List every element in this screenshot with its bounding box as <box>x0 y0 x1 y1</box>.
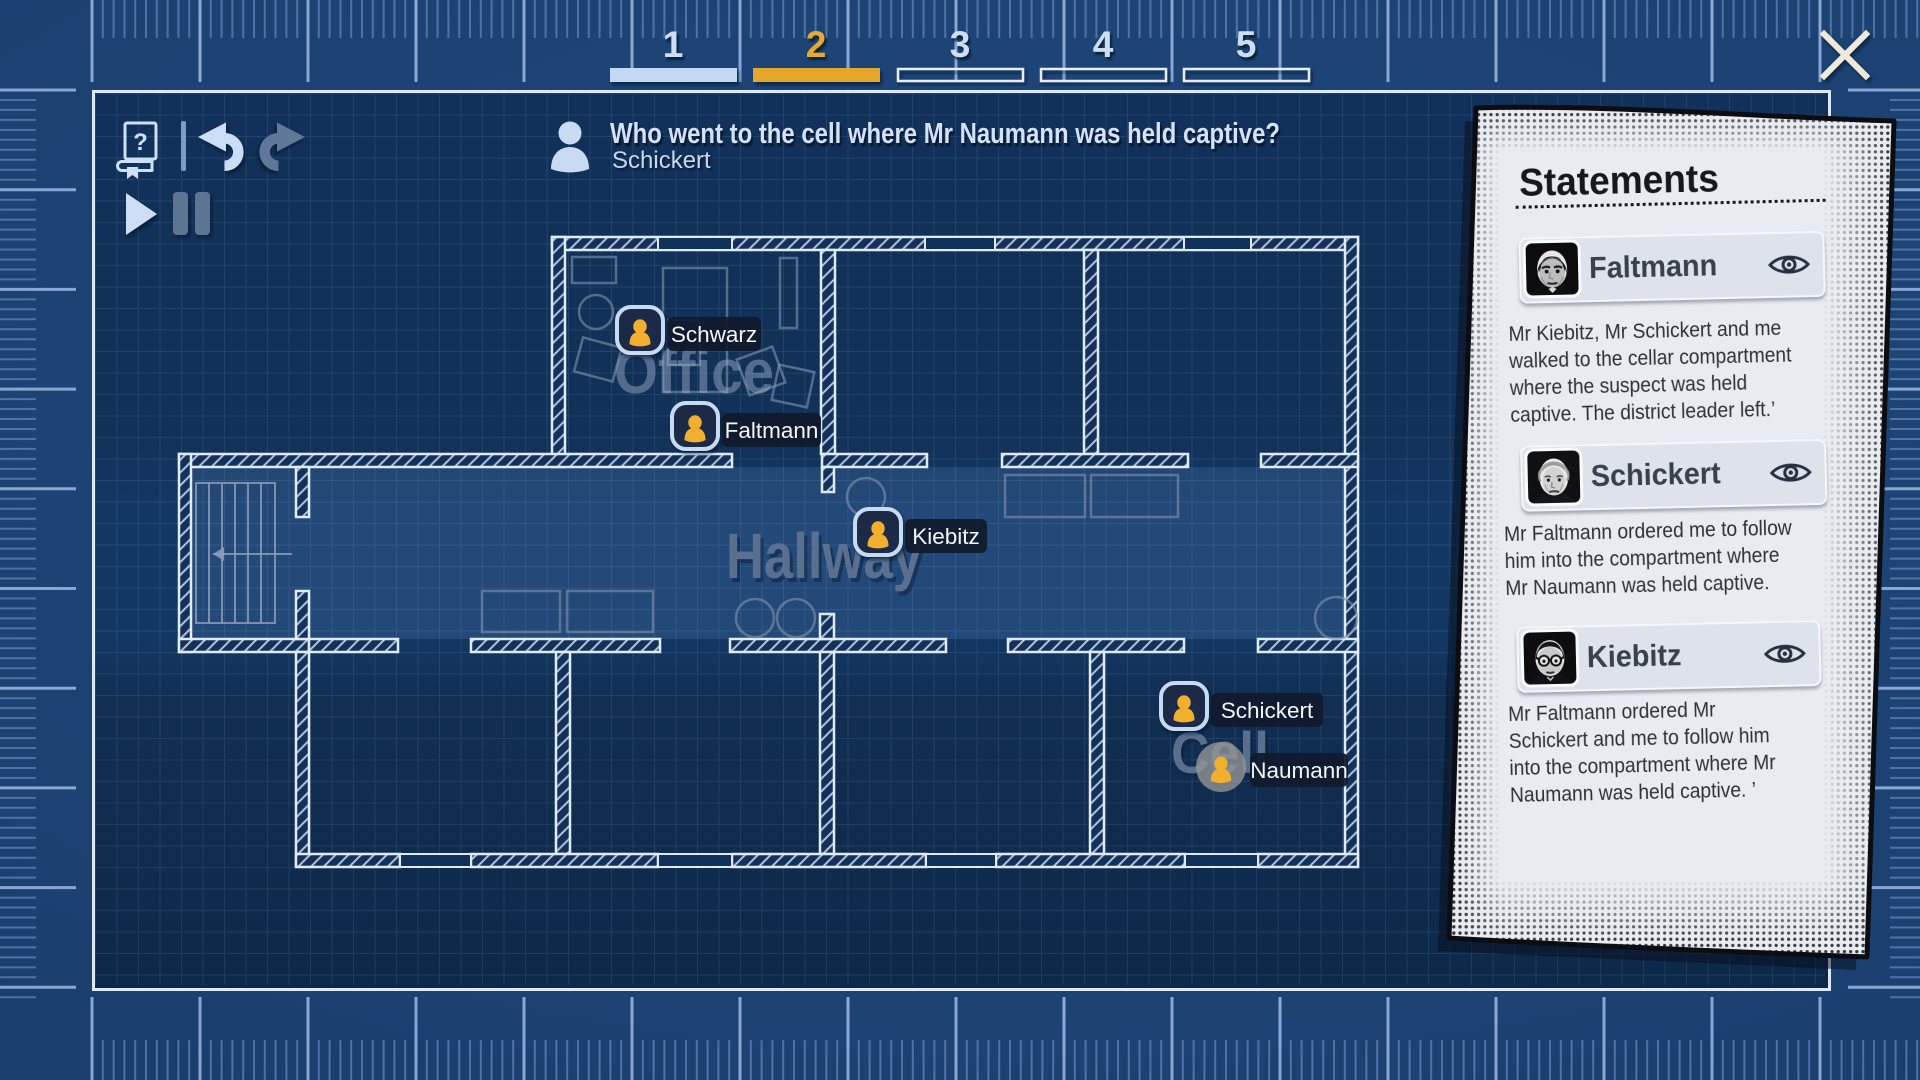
svg-text:Kiebitz: Kiebitz <box>912 524 980 549</box>
svg-text:3: 3 <box>950 24 971 65</box>
svg-text:?: ? <box>133 129 148 156</box>
svg-text:Schickert: Schickert <box>1221 698 1314 723</box>
svg-text:5: 5 <box>1236 24 1257 65</box>
svg-text:Naumann: Naumann <box>1250 758 1348 783</box>
svg-text:Faltmann: Faltmann <box>725 418 819 443</box>
svg-text:4: 4 <box>1093 24 1114 65</box>
svg-text:1: 1 <box>663 24 684 65</box>
svg-text:Schwarz: Schwarz <box>671 322 757 347</box>
svg-text:2: 2 <box>806 24 827 65</box>
